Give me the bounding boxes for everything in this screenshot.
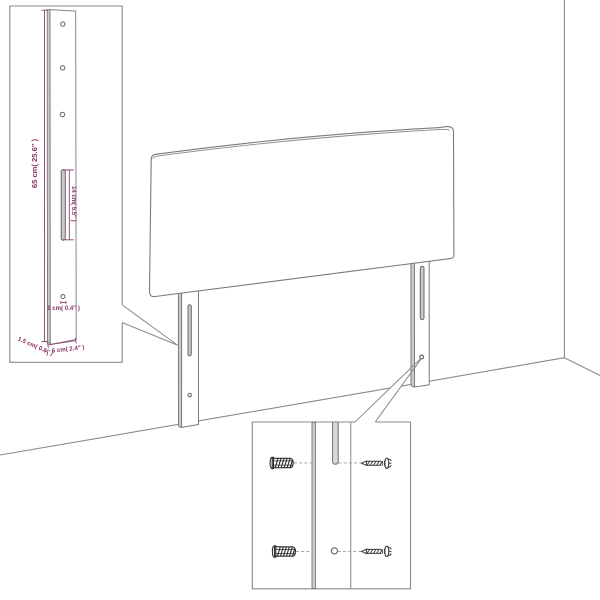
svg-text:1 cm( 0.4″ ): 1 cm( 0.4″ )	[47, 305, 80, 312]
svg-text:14 cm( 5.5″ ): 14 cm( 5.5″ )	[70, 186, 76, 222]
svg-text:65 cm( 25.6″ ): 65 cm( 25.6″ )	[30, 138, 39, 188]
